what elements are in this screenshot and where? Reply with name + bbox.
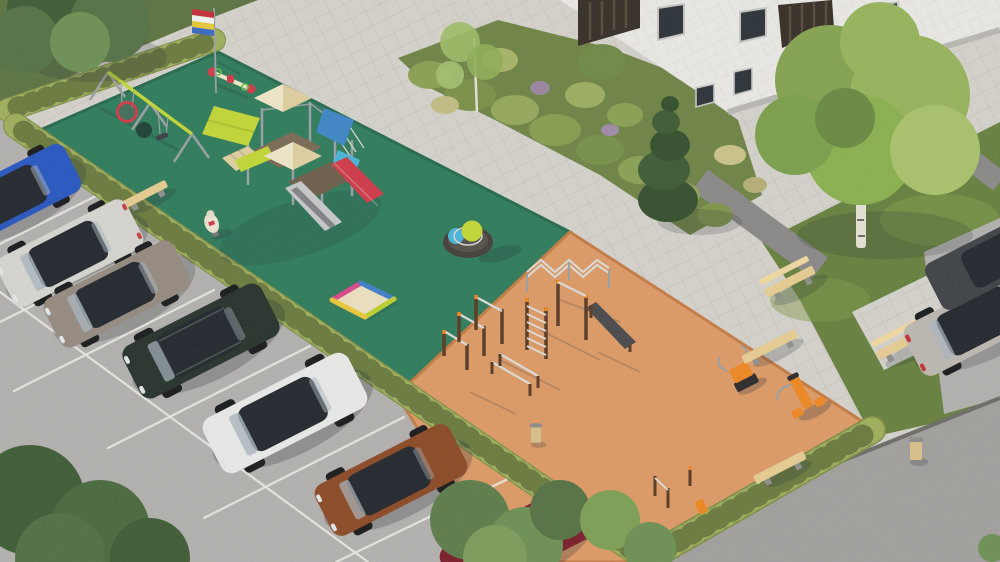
grain-overlay — [0, 0, 1000, 562]
courtyard-rendering — [0, 0, 1000, 562]
scene-canvas — [0, 0, 1000, 562]
